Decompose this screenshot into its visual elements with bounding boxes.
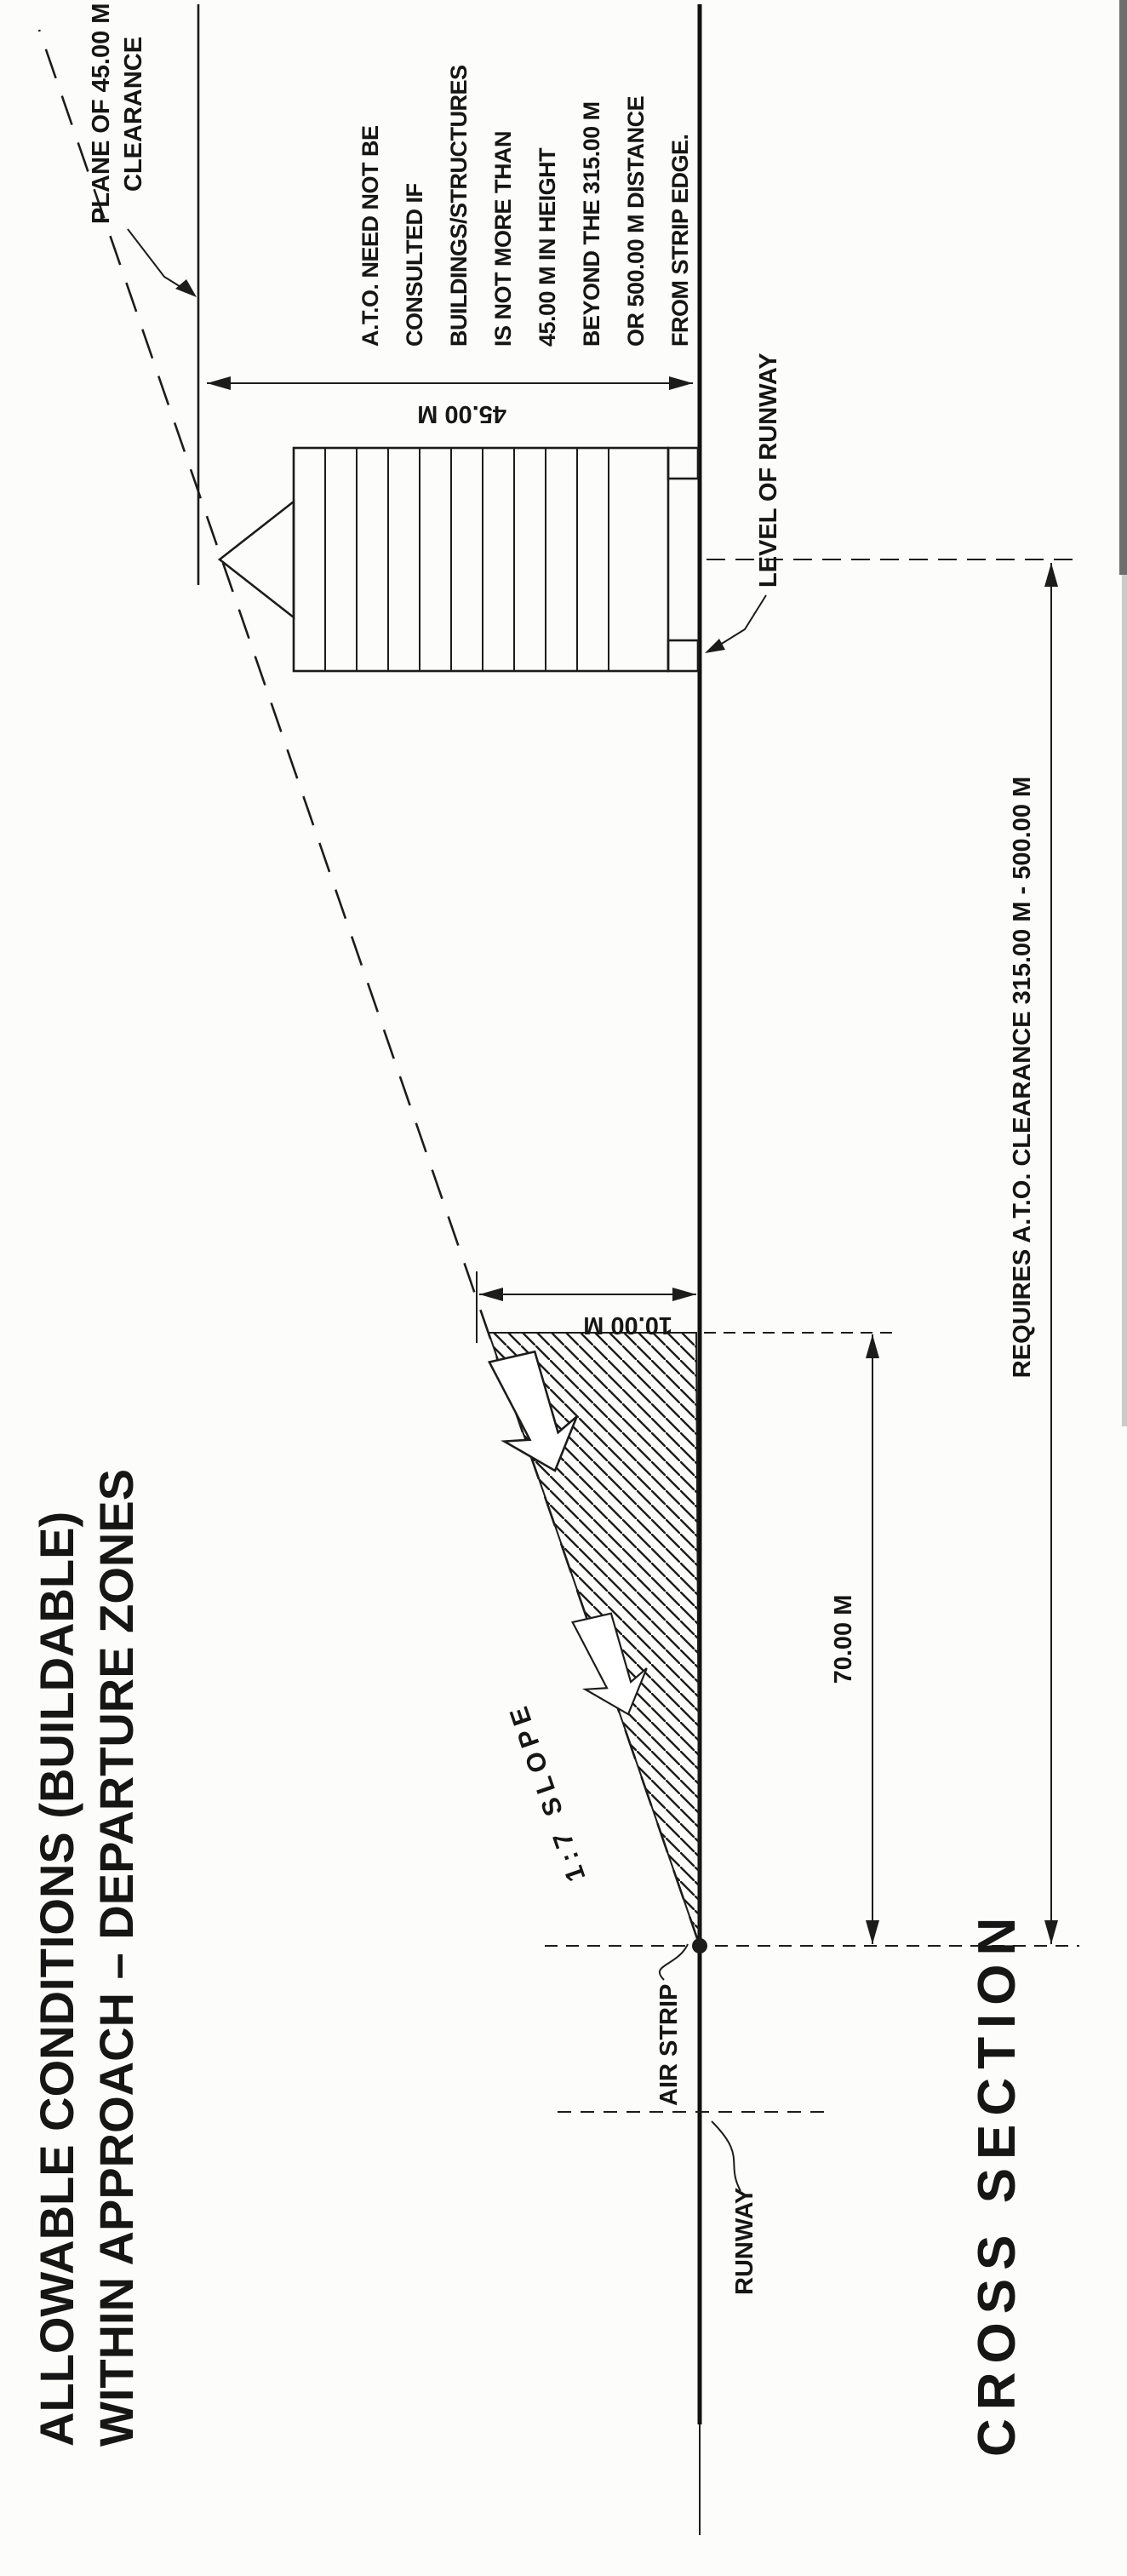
- title-line-1: ALLOWABLE CONDITIONS (BUILDABLE): [30, 1512, 83, 2447]
- tower-foot-left: [668, 640, 698, 671]
- note-line: BEYOND THE 315.00 M: [579, 101, 604, 347]
- ato-dim-arrow-right: [1044, 563, 1058, 587]
- air-strip-leader: [660, 1944, 688, 1980]
- note-line: FROM STRIP EDGE.: [667, 134, 693, 347]
- plane-label-line-2: CLEARANCE: [120, 37, 147, 192]
- ato-dim-arrow-left: [1044, 1920, 1058, 1944]
- dim45-label: 45.00 M: [417, 400, 506, 427]
- tower-structure: [220, 448, 1079, 671]
- scan-edge-artifact-light: [1122, 575, 1127, 1426]
- note-line: 45.00 M IN HEIGHT: [535, 147, 560, 347]
- dimension-45m: 45.00 M: [207, 376, 693, 427]
- note-line: IS NOT MORE THAN: [490, 131, 516, 347]
- air-strip: AIR STRIP: [655, 1944, 688, 2106]
- slope-label: 1:7 SLOPE: [501, 1697, 591, 1885]
- level-leader-line: [713, 595, 766, 649]
- buildable-envelope: [477, 1333, 700, 1946]
- dim70-label: 70.00 M: [830, 1595, 857, 1684]
- level-of-runway: LEVEL OF RUNWAY: [705, 353, 782, 653]
- air-strip-label: AIR STRIP: [655, 1984, 683, 2106]
- tower-body: [294, 448, 668, 671]
- rotated-drawing-stage: ALLOWABLE CONDITIONS (BUILDABLE) WITHIN …: [0, 0, 1127, 2576]
- dimension-ato-clearance: REQUIRES A.T.O. CLEARANCE 315.00 M - 500…: [1009, 563, 1058, 1944]
- note-line: CONSULTED IF: [402, 184, 427, 347]
- title-line-2: WITHIN APPROACH – DEPARTURE ZONES: [89, 1469, 143, 2447]
- dim45-arrow-up: [207, 376, 231, 390]
- ato-dim-label: REQUIRES A.T.O. CLEARANCE 315.00 M - 500…: [1009, 777, 1036, 1378]
- plane-leader-arrow: [175, 279, 197, 297]
- dim10-label: 10.00 M: [583, 1311, 672, 1339]
- dimension-10m: 10.00 M: [477, 1271, 894, 1343]
- dim45-arrow-down: [669, 376, 693, 390]
- tower-foot-right: [668, 448, 698, 479]
- dim70-arrow-right: [866, 1334, 879, 1358]
- dimension-70m: 70.00 M: [830, 1334, 879, 1944]
- drawing-title: ALLOWABLE CONDITIONS (BUILDABLE) WITHIN …: [30, 1469, 143, 2447]
- note-line: BUILDINGS/STRUCTURES: [446, 65, 472, 347]
- plane-leader-line: [128, 229, 189, 292]
- scan-edge-artifact-dark: [1119, 0, 1127, 575]
- tower-floor-lines: [325, 448, 609, 671]
- plane-label-line-1: PLANE OF 45.00 M: [88, 3, 115, 224]
- ato-note: A.T.O. NEED NOT BE CONSULTED IF BUILDING…: [358, 65, 693, 347]
- runway-label: RUNWAY: [731, 2188, 758, 2295]
- dim10-arrow-down: [672, 1288, 696, 1301]
- dim70-arrow-left: [866, 1920, 879, 1944]
- clearance-plane: PLANE OF 45.00 M CLEARANCE: [88, 3, 198, 585]
- runway: RUNWAY: [712, 2121, 758, 2295]
- tower-roof: [220, 502, 294, 617]
- scanned-page: ALLOWABLE CONDITIONS (BUILDABLE) WITHIN …: [0, 0, 1127, 2576]
- note-line: A.T.O. NEED NOT BE: [358, 125, 383, 347]
- cross-section-drawing: ALLOWABLE CONDITIONS (BUILDABLE) WITHIN …: [0, 0, 1127, 2576]
- level-of-runway-label: LEVEL OF RUNWAY: [755, 353, 782, 588]
- drawing-caption: CROSS SECTION: [968, 1909, 1027, 2457]
- runway-leader: [712, 2121, 741, 2191]
- note-line: OR 500.00 M DISTANCE: [623, 96, 649, 347]
- dim10-arrow-up: [479, 1288, 503, 1301]
- level-leader-arrow: [705, 639, 725, 653]
